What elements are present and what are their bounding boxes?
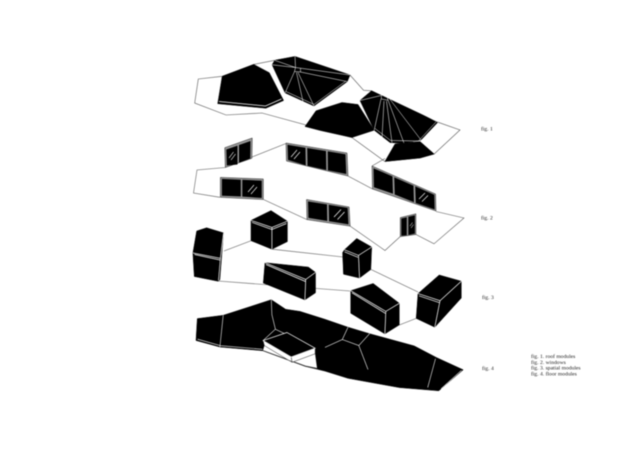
svg-text:fig. 3: fig. 3 [482,294,494,301]
svg-text:fig. 4. floor modules: fig. 4. floor modules [531,370,577,377]
svg-text:fig. 4: fig. 4 [482,365,494,372]
svg-text:fig. 2: fig. 2 [481,215,493,222]
svg-text:fig. 1: fig. 1 [481,126,493,133]
